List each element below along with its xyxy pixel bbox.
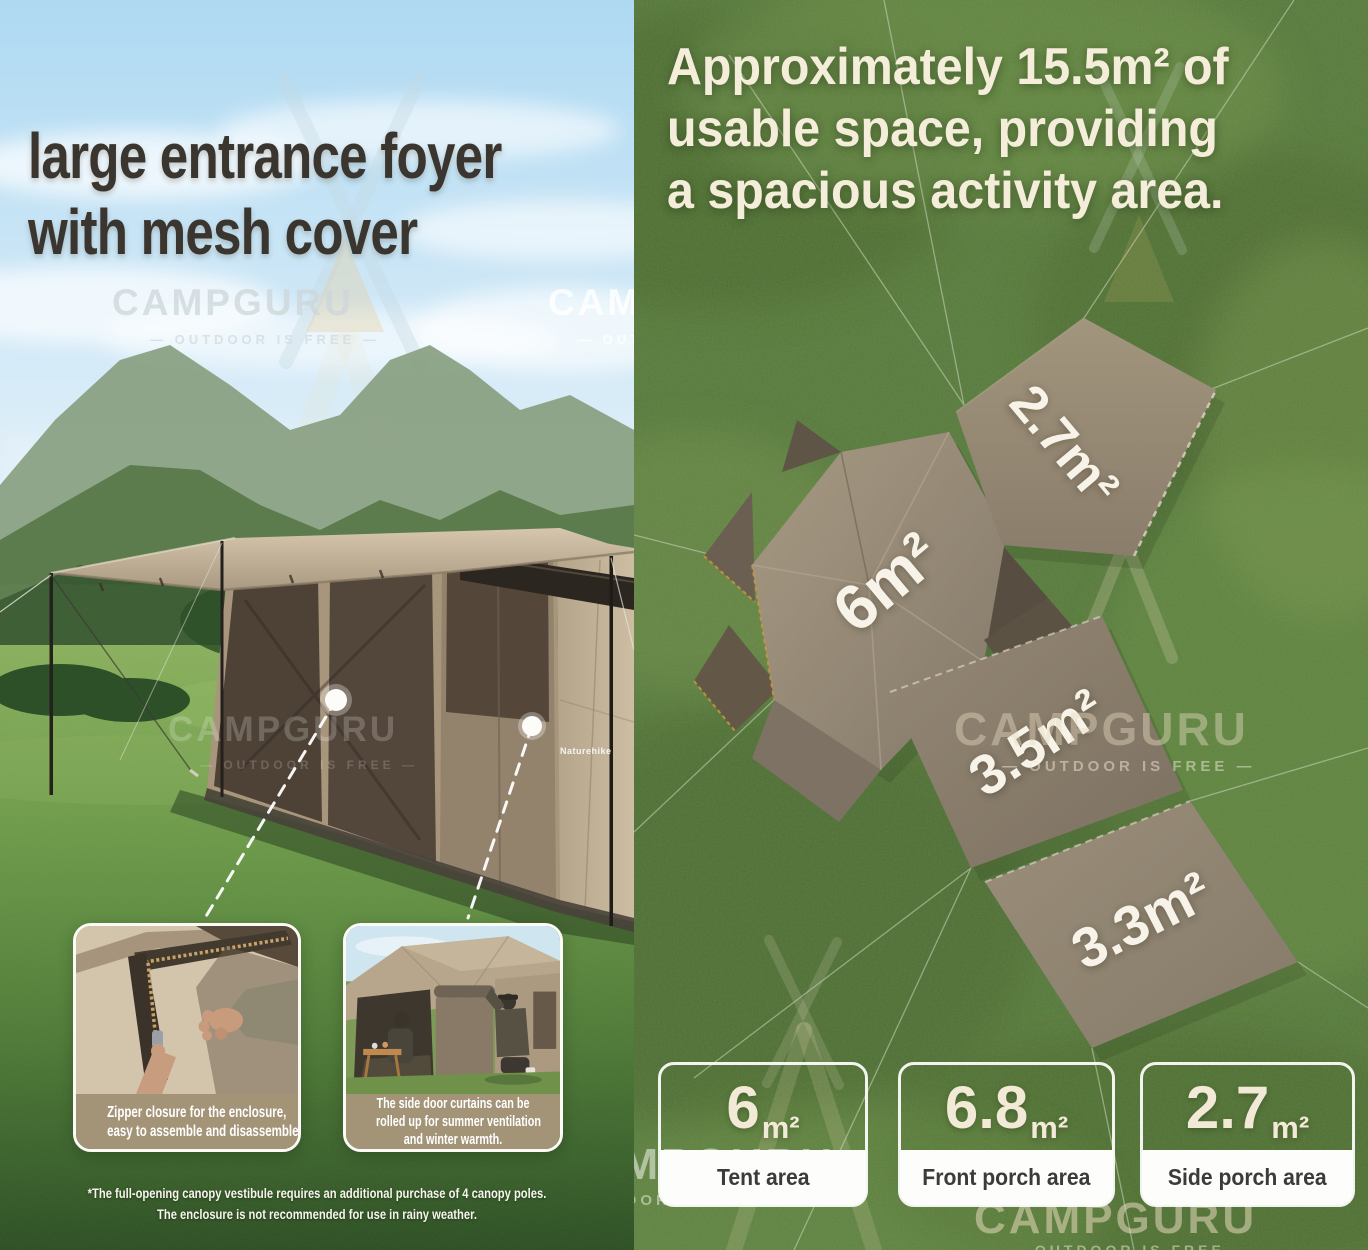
watermark-tagline-sky-2: — OUTDOOR IS FREE — [578,332,634,347]
watermark-brand-sky-2: CAMPGURU [548,282,634,324]
stat-label: Tent area [660,1150,866,1205]
product-infographic: large entrance foyer with mesh cover CAM… [0,0,1368,1250]
disclaimer-line1: *The full-opening canopy vestibule requi… [63,1183,570,1204]
inset-caption-side-door: The side door curtains can be rolled up … [346,1094,560,1149]
stat-unit: m² [1030,1110,1068,1150]
watermark-tagline-sky: — OUTDOOR IS FREE — [150,332,380,347]
right-heading-line3: a spacious activity area. [667,160,1229,222]
stat-value: 6 [726,1078,759,1138]
watermark-brand-sky: CAMPGURU [112,282,354,324]
stat-card-front-porch-area: 6.8 m² Front porch area [898,1062,1115,1207]
camp-table [363,1049,401,1055]
inset-caption-zipper: Zipper closure for the enclosure, easy t… [76,1094,298,1149]
stat-card-side-porch-area: 2.7 m² Side porch area [1140,1062,1355,1207]
right-heading-line2: usable space, providing [667,98,1229,160]
left-heading: large entrance foyer with mesh cover [28,118,620,270]
stat-value: 6.8 [945,1078,1028,1138]
stat-value: 2.7 [1186,1078,1269,1138]
rolled-curtain [434,985,495,997]
naturehike-logo: Naturehike [560,746,612,756]
right-heading: Approximately 15.5m² of usable space, pr… [667,36,1271,222]
disclaimer-line2: The enclosure is not recommended for use… [63,1204,570,1225]
left-heading-line1: large entrance foyer [28,118,501,194]
watermark-tagline-mid: — OUTDOOR IS FREE — [1002,758,1256,775]
awning-pole-left [50,573,54,795]
stat-value-row: 6.8 m² [901,1065,1112,1150]
stat-value-row: 2.7 m² [1143,1065,1352,1150]
stat-card-tent-area: 6 m² Tent area [658,1062,868,1207]
inset-card-side-door: The side door curtains can be rolled up … [343,923,563,1152]
inset-photo-side-door [346,926,560,1094]
seated-person [394,1012,409,1028]
callout-dot-2 [522,716,542,736]
watermark-tagline-bottom-center: — OUTDOOR IS FREE — [1009,1242,1251,1250]
left-photo-panel: large entrance foyer with mesh cover CAM… [0,0,634,1250]
right-heading-line1: Approximately 15.5m² of [667,36,1229,98]
watermark-brand-mid: CAMPGURU [954,702,1249,756]
stat-label: Side porch area [1142,1150,1353,1205]
inset-photo-zipper [76,926,298,1094]
hand-upper [209,1008,243,1033]
inset-card-zipper: Zipper closure for the enclosure, easy t… [73,923,301,1152]
callout-dot-1 [325,689,347,711]
stat-unit: m² [762,1110,800,1150]
stat-value-row: 6 m² [661,1065,865,1150]
stat-unit: m² [1271,1110,1309,1150]
stat-label: Front porch area [900,1150,1113,1205]
right-photo-panel: Approximately 15.5m² of usable space, pr… [634,0,1368,1250]
awning-pole-front [610,556,614,926]
left-heading-line2: with mesh cover [28,194,501,270]
watermark-tagline-tent: — OUTDOOR IS FREE — [200,758,418,772]
watermark-brand-tent: CAMPGURU [168,710,398,750]
disclaimer: *The full-opening canopy vestibule requi… [0,1183,634,1225]
